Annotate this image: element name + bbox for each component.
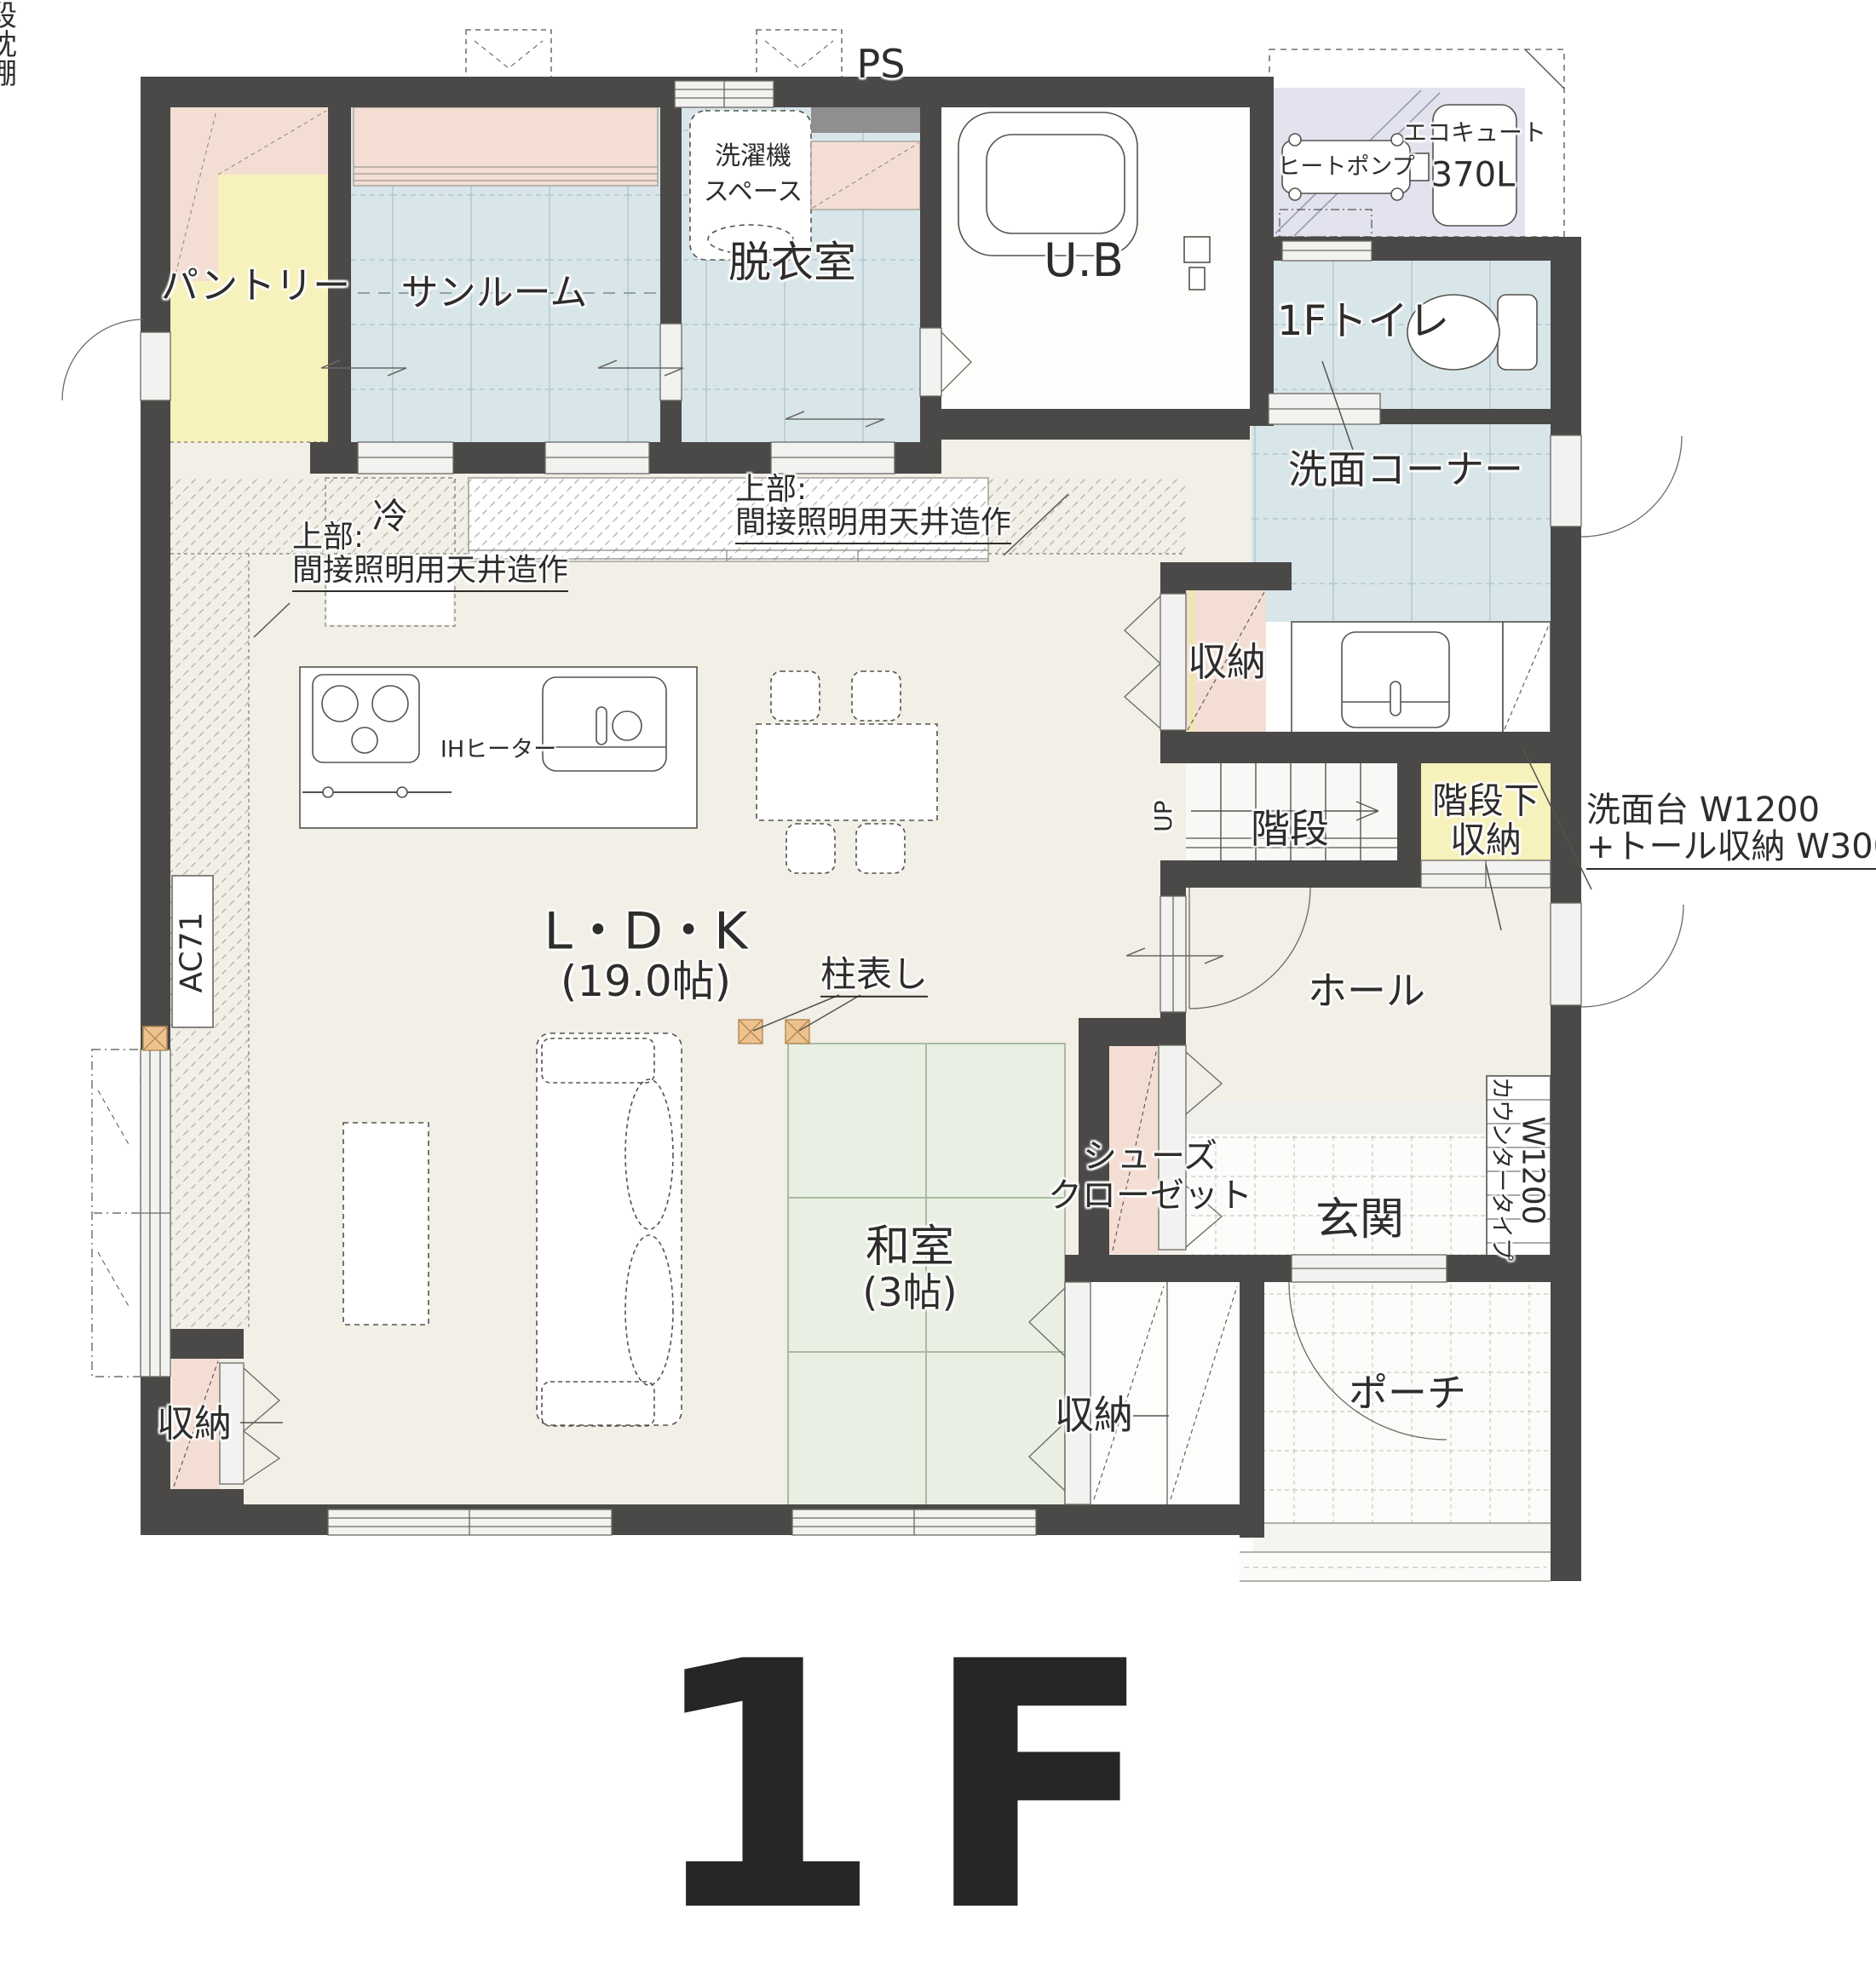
label-storage-wash: 収納	[1188, 641, 1266, 684]
room-label-hall: ホール	[1308, 970, 1425, 1013]
annotation-ceiling-left: 上部: 間接照明用天井造作	[292, 521, 568, 592]
label-counter-type: カウンタータイプ	[1488, 1077, 1513, 1261]
label-laundry-line2: スペース	[704, 179, 803, 206]
label-tatami-size: (3帖)	[862, 1272, 957, 1314]
annotation-ceiling-right-line2: 間接照明用天井造作	[735, 507, 1011, 544]
room-label-wash-corner: 洗面コーナー	[1288, 449, 1523, 492]
room-label-pantry: パントリー	[161, 266, 350, 307]
room-label-dressing: 脱衣室	[728, 239, 856, 285]
label-under-stairs-line2: 収納	[1450, 820, 1522, 859]
label-shoe-closet-line2: クローゼット	[1048, 1177, 1252, 1214]
label-shoe-closet-line1: シューズ	[1083, 1138, 1217, 1175]
floor-title: 1F	[646, 1605, 1194, 1961]
label-tatami-closet: 収納	[1055, 1395, 1133, 1437]
label-counter-width: W1200	[1516, 1116, 1549, 1224]
label-ldk-size: (19.0帖)	[561, 958, 731, 1004]
annotation-ceiling-left-line2: 間接照明用天井造作	[292, 555, 568, 592]
label-ac71: AC71	[176, 912, 210, 993]
annotation-vanity-line2: +トール収納 W300	[1586, 829, 1876, 870]
label-under-stairs-line1: 階段下	[1432, 781, 1539, 819]
annotation-ceiling-right-line1: 上部:	[735, 474, 1011, 507]
room-label-porch: ポーチ	[1349, 1372, 1466, 1415]
annotation-ceiling-left-line1: 上部:	[292, 521, 568, 555]
annotation-pillar: 柱表し	[820, 955, 928, 998]
label-heat-pump: ヒートポンプ	[1277, 154, 1414, 179]
annotation-ceiling-right: 上部: 間接照明用天井造作	[735, 474, 1011, 544]
room-label-unit-bath: U.B	[1044, 236, 1124, 285]
room-label-stairs: 階段	[1251, 808, 1329, 851]
label-stairs-up: UP	[1151, 800, 1177, 831]
label-laundry-line1: 洗濯機	[715, 143, 791, 170]
label-ecocute-name: エコキュート	[1403, 120, 1546, 146]
annotation-vanity-line1: 洗面台 W1200	[1586, 792, 1876, 829]
room-label-toilet: 1Fトイレ	[1277, 300, 1449, 344]
room-label-sunroom: サンルーム	[401, 273, 588, 313]
label-ecocute-capacity: 370L	[1431, 157, 1516, 193]
label-shelf-pillow: 枕棚	[0, 29, 21, 87]
label-ldk-storage: 収納	[157, 1404, 232, 1445]
floor-plan-page: パントリー サンルーム 洗濯機 スペース PS 脱衣室 U.B ヒートポンプ エ…	[0, 0, 1876, 1961]
room-label-entrance: 玄関	[1315, 1196, 1404, 1244]
annotation-vanity: 洗面台 W1200 +トール収納 W300	[1586, 792, 1876, 870]
room-label-tatami: 和室	[866, 1223, 954, 1271]
room-label-ldk: L・D・K	[544, 905, 748, 960]
label-pipe-space: PS	[857, 43, 906, 86]
label-shelf-middle: 中段	[0, 0, 21, 29]
label-ih-heater: IHヒーター	[440, 737, 556, 762]
